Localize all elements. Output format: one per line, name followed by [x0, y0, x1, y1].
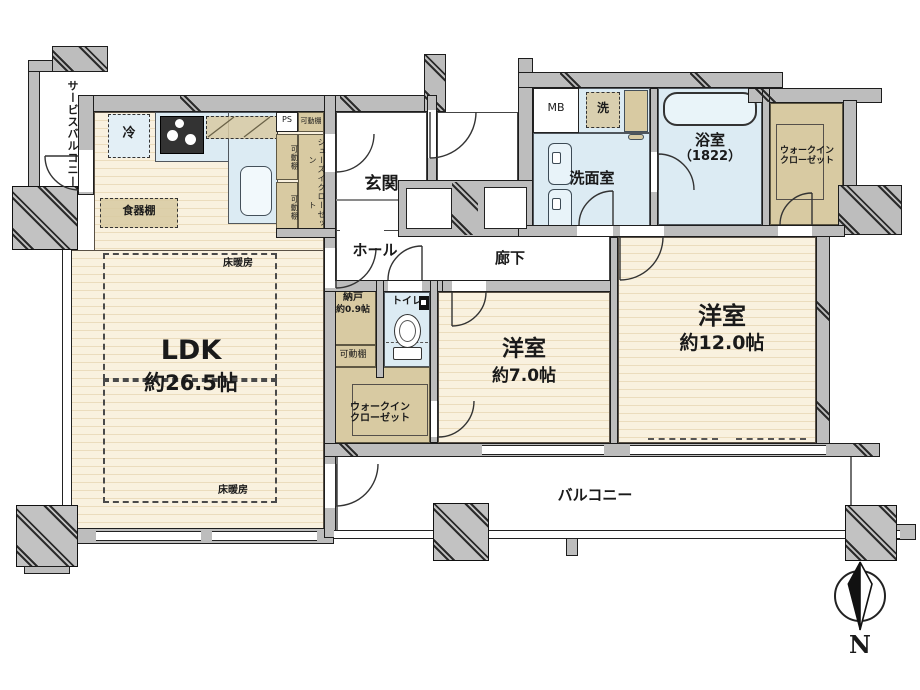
- wic-center-label: ウォークイン クローゼット: [332, 402, 428, 424]
- toilet-tank: [393, 347, 422, 360]
- wall-top-main: [82, 95, 446, 112]
- floor-plan: サービス バルコニー 冷 食器棚 PS 可動棚 可動棚 可動棚 シューズイン ク…: [0, 0, 920, 690]
- bathtub: [663, 92, 757, 126]
- mb-label: MB: [533, 102, 579, 114]
- shaft-void-2: [484, 187, 527, 229]
- balcony-rail: [334, 530, 900, 539]
- opening-bath: [651, 152, 657, 192]
- basin-handle: [628, 134, 644, 140]
- toilet-bowl-inner: [399, 320, 416, 342]
- burner-1: [167, 130, 178, 141]
- ldk-size-label: 約26.5帖: [105, 372, 277, 396]
- opening-room12: [620, 226, 664, 236]
- shaft-void-1: [406, 188, 452, 229]
- stove: [160, 116, 204, 154]
- cupboard-label: 食器棚: [100, 205, 178, 217]
- room7-name-label: 洋室: [464, 338, 584, 363]
- window-ldk-bottom-1: [96, 531, 201, 541]
- sic-line1: シューズイン: [297, 138, 325, 183]
- pillar-foot: [24, 566, 70, 574]
- wall-top-north: [518, 72, 783, 88]
- vanity-1-basin: [552, 152, 561, 164]
- kitchen-cabinets: [206, 116, 278, 139]
- wall-tick-9: [852, 444, 876, 456]
- opening-wic-ne: [778, 226, 812, 236]
- wic-ne-label: ウォークイン クローゼット: [768, 146, 846, 166]
- wall-room12-left: [610, 237, 618, 445]
- sic-line2: クローゼット: [297, 183, 325, 228]
- opening-wic-room7: [431, 401, 437, 437]
- room7-size-label: 約7.0帖: [464, 367, 584, 386]
- pillar-bottom-left: [16, 505, 78, 567]
- hall-label: ホール: [330, 242, 420, 259]
- sic-shelf-label-1: 可動棚: [276, 136, 298, 180]
- service-balcony-line2: バルコニー: [42, 128, 78, 188]
- toilet-label: トイレ: [384, 296, 430, 307]
- shelf-top-label: 可動棚: [297, 118, 325, 126]
- wall-nando-toilet: [376, 280, 384, 378]
- wall-sb-left: [28, 60, 40, 198]
- wall-tick-4: [690, 73, 712, 87]
- nando-shelf-label: 可動棚: [330, 350, 376, 360]
- burner-2: [185, 134, 196, 145]
- window-room7: [482, 445, 604, 455]
- laundry-label: 洗: [586, 102, 620, 115]
- window-rail-dash-1: [648, 438, 718, 441]
- opening-entrance: [428, 110, 436, 158]
- corridor-label: 廊下: [478, 250, 542, 267]
- wall-hall-bottom: [324, 280, 446, 292]
- nando-size-label: 約0.9帖: [328, 305, 378, 315]
- kitchen-sink: [240, 166, 272, 216]
- window-ldk-left: [62, 248, 72, 508]
- pillar-balcony-mid: [433, 503, 489, 561]
- floor-heating-label-2: 床暖房: [200, 485, 266, 496]
- ldk-name-label: LDK: [105, 336, 277, 366]
- wic-ne-line2: クローゼット: [768, 156, 846, 166]
- compass-n-label: N: [844, 632, 876, 659]
- opening-balcony-door: [325, 464, 335, 508]
- wall-tick-8: [338, 444, 358, 456]
- wic-ne-line1: ウォークイン: [768, 146, 846, 156]
- opening-genkan-hall: [340, 229, 384, 237]
- room12-size-label: 約12.0帖: [654, 333, 790, 354]
- pillar-left-mid: [12, 186, 78, 250]
- opening-toilet: [388, 281, 422, 291]
- nando-name-label: 納戸: [330, 292, 376, 303]
- floor-heating-label-1: 床暖房: [205, 258, 271, 269]
- wall-tick-7: [817, 400, 829, 422]
- wall-tick-6: [817, 300, 829, 322]
- bath-size-label: （1822）: [660, 150, 760, 165]
- wall-sb-cap: [52, 46, 108, 72]
- shaft-hatch: [452, 182, 478, 235]
- wall-right-step: [843, 100, 857, 188]
- wic-center-line2: クローゼット: [332, 413, 428, 424]
- bath-name-label: 浴室: [664, 132, 756, 149]
- refrigerator-label: 冷: [108, 127, 150, 142]
- window-room12: [630, 445, 826, 455]
- burner-3: [175, 119, 184, 128]
- room12-name-label: 洋室: [662, 303, 782, 330]
- wall-tick-1: [180, 96, 202, 111]
- opening-sic: [325, 134, 335, 172]
- room-vestibule: [437, 112, 518, 182]
- service-balcony-line1: サービス: [42, 80, 78, 128]
- balcony-rail-tab: [566, 538, 578, 556]
- wall-tick-3: [560, 73, 582, 87]
- wall-tick-5: [755, 89, 777, 102]
- washroom-label: 洗面室: [540, 170, 644, 187]
- service-balcony-label: サービス バルコニー: [42, 78, 78, 190]
- pillar-balcony-right: [845, 505, 897, 561]
- wall-tick-2: [340, 96, 362, 111]
- opening-room7: [452, 281, 486, 291]
- sic-label: シューズイン クローゼット: [297, 138, 325, 228]
- vanity-2-basin: [552, 198, 561, 210]
- opening-sb-door: [79, 150, 93, 192]
- opening-washroom: [577, 226, 613, 236]
- genkan-label: 玄関: [336, 175, 427, 194]
- wall-right-block: [838, 185, 902, 235]
- balcony-label: バルコニー: [520, 487, 670, 504]
- window-rail-dash-2: [736, 438, 806, 441]
- ps-label: PS: [276, 116, 298, 125]
- window-ldk-bottom-2: [212, 531, 317, 541]
- basin-cabinet: [624, 90, 648, 132]
- sic-shelf-label-2: 可動棚: [276, 186, 298, 230]
- wic-center-line1: ウォークイン: [332, 402, 428, 413]
- compass-icon: [828, 556, 892, 638]
